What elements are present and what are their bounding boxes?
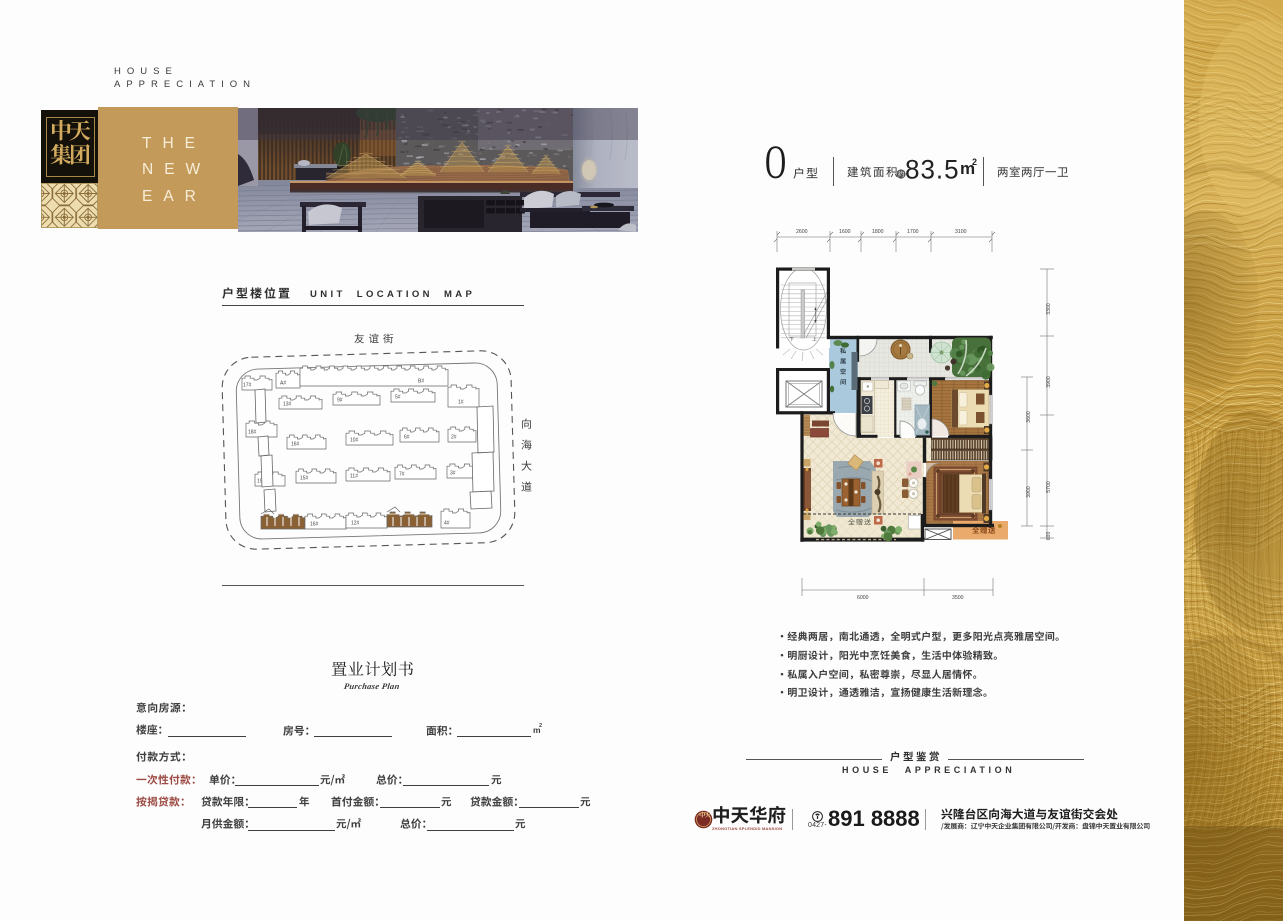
svg-text:18#: 18#: [248, 430, 257, 436]
svg-text:6000: 6000: [857, 595, 869, 601]
svg-text:16#: 16#: [291, 442, 300, 448]
svg-text:17#: 17#: [243, 383, 252, 389]
svg-text:1700: 1700: [907, 229, 919, 235]
svg-text:3900: 3900: [1026, 486, 1032, 498]
svg-text:3#: 3#: [450, 471, 456, 477]
svg-text:B#: B#: [418, 379, 424, 385]
svg-text:2#: 2#: [451, 435, 457, 441]
svg-text:10#: 10#: [350, 438, 359, 444]
svg-text:5#: 5#: [395, 395, 401, 401]
svg-text:3600: 3600: [1026, 411, 1032, 423]
svg-text:2600: 2600: [796, 229, 808, 235]
svg-text:600: 600: [1046, 532, 1052, 541]
svg-text:3100: 3100: [955, 229, 967, 235]
svg-text:16#: 16#: [310, 522, 319, 528]
svg-text:1800: 1800: [872, 229, 884, 235]
svg-text:3500: 3500: [952, 595, 964, 601]
svg-text:9#: 9#: [337, 398, 343, 404]
svg-text:3300: 3300: [1046, 303, 1052, 315]
svg-text:5700: 5700: [1046, 481, 1052, 493]
svg-text:15#: 15#: [300, 476, 309, 482]
svg-text:11#: 11#: [350, 474, 358, 480]
svg-text:12#: 12#: [351, 521, 360, 527]
svg-text:3900: 3900: [1046, 376, 1052, 388]
svg-text:13#: 13#: [283, 402, 292, 408]
svg-text:7#: 7#: [399, 472, 405, 478]
svg-text:1600: 1600: [839, 229, 851, 235]
svg-text:6#: 6#: [404, 435, 410, 441]
svg-text:4#: 4#: [444, 521, 450, 527]
svg-text:1#: 1#: [458, 400, 464, 406]
svg-text:A#: A#: [280, 381, 286, 387]
